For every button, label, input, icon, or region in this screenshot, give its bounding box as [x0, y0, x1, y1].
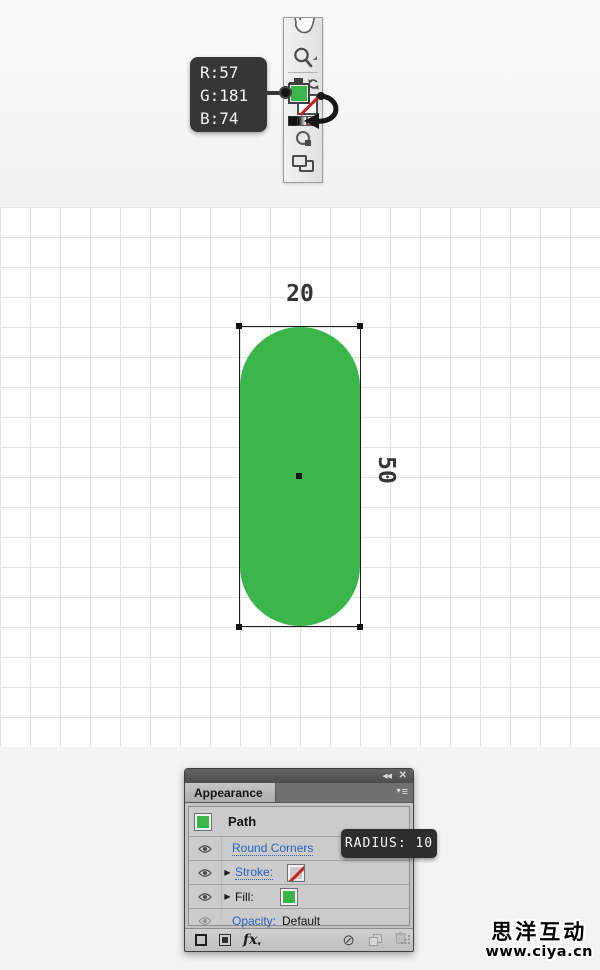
- visibility-toggle[interactable]: [189, 861, 222, 884]
- magnifier-icon: [292, 46, 314, 75]
- fill-row-label: Fill:: [235, 890, 254, 904]
- rgb-g-value: G:181: [200, 84, 267, 107]
- fill-green-swatch[interactable]: [280, 888, 298, 906]
- path-fill-swatch: [194, 813, 212, 831]
- toolbar-divider: [288, 72, 318, 73]
- shape-center-point[interactable]: [296, 473, 302, 479]
- hand-tool-button[interactable]: [284, 18, 322, 44]
- stroke-link[interactable]: Stroke:: [235, 865, 273, 880]
- artboard-canvas[interactable]: 20 50: [0, 207, 600, 747]
- collapse-panel-icon[interactable]: ◀◀: [382, 772, 391, 780]
- rgb-value-tooltip: R:57 G:181 B:74: [190, 57, 267, 132]
- selection-handle-bottom-right[interactable]: [357, 624, 363, 630]
- add-new-fill-button[interactable]: [219, 934, 231, 946]
- zoom-tool-button[interactable]: [284, 46, 322, 75]
- add-new-effect-button[interactable]: fx▾: [243, 932, 261, 948]
- round-corners-link[interactable]: Round Corners: [232, 841, 313, 856]
- eye-icon: [198, 868, 212, 878]
- screen-mode-icon[interactable]: [292, 155, 314, 172]
- expand-triangle-icon[interactable]: ▶: [222, 892, 233, 901]
- curved-arrow-annotation: [298, 84, 348, 134]
- appearance-rows: Path Round Corners ▶ Stroke:: [188, 806, 410, 926]
- panel-bottom-toolbar: fx▾ ⊘: [185, 928, 413, 951]
- panel-titlebar[interactable]: ◀◀ ✕: [185, 769, 413, 783]
- expand-triangle-icon[interactable]: ▶: [222, 868, 233, 877]
- stroke-none-swatch[interactable]: [287, 864, 305, 882]
- height-dimension-label: 50: [373, 456, 399, 484]
- width-dimension-label: 20: [239, 281, 361, 307]
- selection-handle-top-right[interactable]: [357, 323, 363, 329]
- radius-tooltip: RADIUS: 10: [341, 829, 437, 858]
- watermark-url-text: www.ciya.cn: [486, 944, 594, 960]
- rgb-r-value: R:57: [200, 61, 267, 84]
- appearance-row-fill[interactable]: ▶ Fill:: [189, 885, 409, 909]
- watermark-chinese-text: 思洋互动: [486, 916, 594, 946]
- panel-menu-icon[interactable]: ▾≡: [397, 786, 408, 798]
- hand-icon: [291, 18, 315, 44]
- eye-icon: [198, 916, 212, 926]
- resize-grip[interactable]: [401, 931, 411, 949]
- rgb-b-value: B:74: [200, 107, 267, 130]
- panel-tab-bar: Appearance ▾≡: [185, 783, 413, 803]
- path-row-label: Path: [228, 814, 256, 829]
- clear-appearance-button[interactable]: ⊘: [342, 933, 355, 948]
- appearance-row-stroke[interactable]: ▶ Stroke:: [189, 861, 409, 885]
- visibility-toggle[interactable]: [189, 885, 222, 908]
- selection-handle-top-left[interactable]: [236, 323, 242, 329]
- color-button[interactable]: [288, 116, 298, 126]
- eye-icon: [198, 892, 212, 902]
- illustrator-tutorial-screenshot: { "colors": { "fill_green": "#39b54a", "…: [0, 0, 600, 970]
- appearance-panel: ◀◀ ✕ Appearance ▾≡ Path Round Corners: [184, 768, 414, 952]
- duplicate-item-button[interactable]: [369, 934, 382, 946]
- close-panel-icon[interactable]: ✕: [399, 770, 407, 781]
- add-new-stroke-button[interactable]: [195, 934, 207, 946]
- none-slash-icon: [288, 865, 305, 882]
- eye-icon: [198, 844, 212, 854]
- tab-appearance[interactable]: Appearance: [185, 783, 276, 802]
- opacity-link[interactable]: Opacity:: [232, 914, 276, 929]
- selection-handle-bottom-left[interactable]: [236, 624, 242, 630]
- opacity-value: Default: [282, 914, 320, 928]
- visibility-toggle[interactable]: [189, 837, 222, 860]
- watermark: 思洋互动 www.ciya.cn: [486, 916, 594, 960]
- tooltip-connector-dot: [279, 86, 292, 99]
